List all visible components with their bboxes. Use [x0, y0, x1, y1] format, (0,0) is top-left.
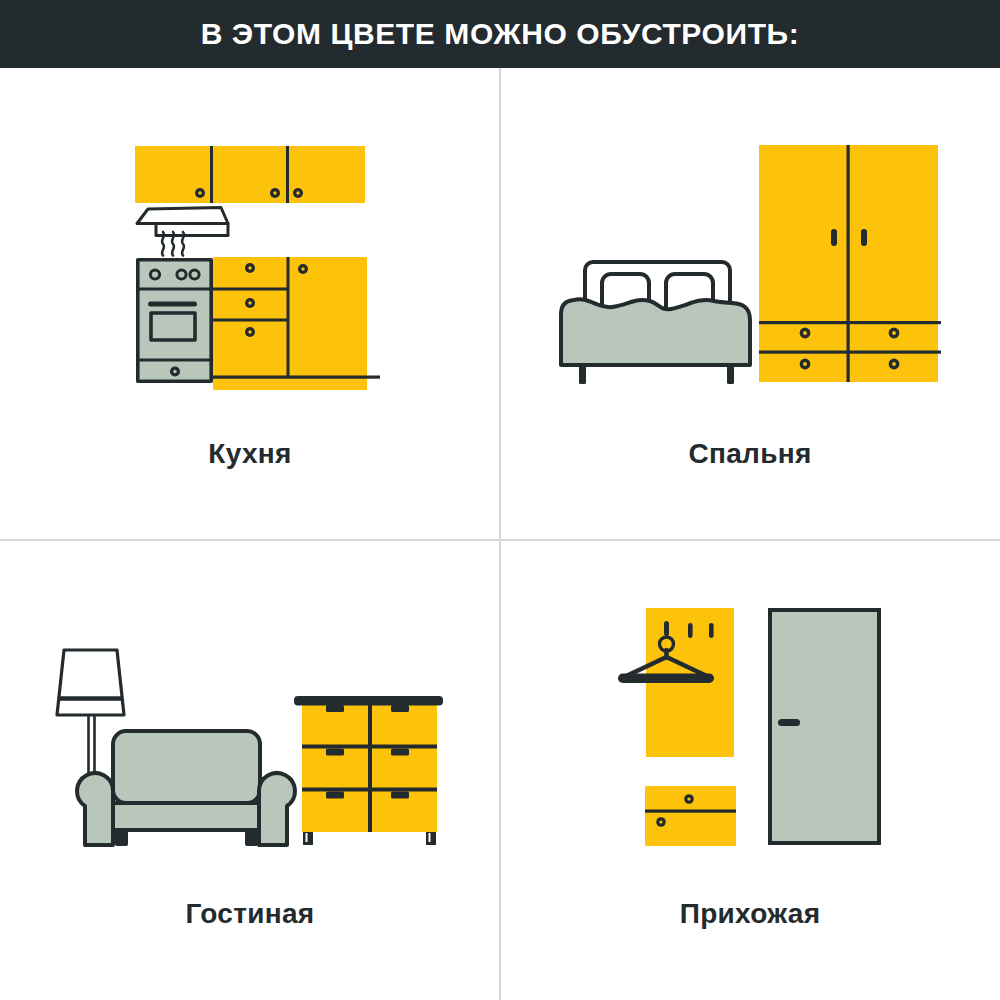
living-label: Гостиная — [0, 898, 500, 930]
living-illustration — [0, 542, 500, 1000]
shoe-cabinet-icon — [645, 786, 736, 846]
sofa-icon — [77, 731, 295, 846]
wardrobe-icon — [759, 145, 941, 382]
wardrobe-door-handle — [831, 229, 837, 246]
sofa-foot — [245, 828, 258, 846]
chest-of-drawers-icon — [294, 696, 443, 845]
stove-drawer-dot — [170, 367, 180, 377]
dresser-foot — [426, 830, 436, 845]
wardrobe-door-handle — [861, 229, 867, 246]
hallway-illustration — [500, 542, 1000, 1000]
sofa-arm-left — [77, 773, 113, 845]
stove-icon — [136, 260, 213, 381]
sofa-back — [113, 731, 260, 803]
dresser-top — [294, 696, 443, 706]
base-cabinets-icon — [213, 257, 380, 390]
lamp-shade — [57, 650, 124, 715]
section-kitchen: Кухня — [0, 68, 500, 540]
hallway-label: Прихожая — [500, 898, 1000, 930]
sofa-seat — [113, 803, 260, 830]
wall-hook — [688, 623, 693, 638]
wall-cabinets-icon — [135, 146, 365, 203]
section-living: Гостиная — [0, 542, 500, 1000]
section-bedroom: Спальня — [500, 68, 1000, 540]
bed-icon — [561, 262, 750, 384]
sofa-foot — [115, 828, 128, 846]
bed-blanket — [561, 299, 750, 365]
dresser-foot — [303, 830, 313, 845]
infographic-room-colors: В ЭТОМ ЦВЕТЕ МОЖНО ОБУСТРОИТЬ: — [0, 0, 1000, 1000]
door-handle — [778, 719, 800, 726]
door-icon — [770, 610, 879, 843]
page-title: В ЭТОМ ЦВЕТЕ МОЖНО ОБУСТРОИТЬ: — [201, 17, 800, 51]
wall-hook — [709, 623, 714, 638]
sofa-arm-right — [259, 773, 295, 845]
header-bar: В ЭТОМ ЦВЕТЕ МОЖНО ОБУСТРОИТЬ: — [0, 0, 1000, 68]
kitchen-label: Кухня — [0, 438, 500, 470]
bedroom-label: Спальня — [500, 438, 1000, 470]
section-hallway: Прихожая — [500, 542, 1000, 1000]
